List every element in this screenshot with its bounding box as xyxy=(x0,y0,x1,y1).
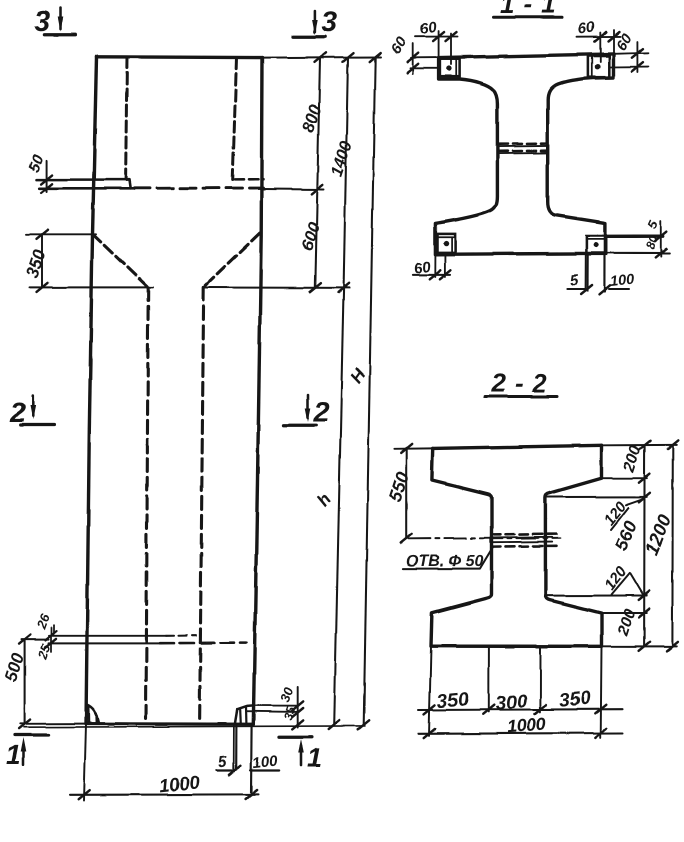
svg-text:1000: 1000 xyxy=(158,771,201,796)
svg-text:60: 60 xyxy=(413,258,433,277)
svg-text:350: 350 xyxy=(436,689,470,713)
svg-text:ОТВ. Ф 50: ОТВ. Ф 50 xyxy=(406,553,484,570)
svg-text:100: 100 xyxy=(252,753,279,773)
svg-text:3: 3 xyxy=(322,7,338,39)
svg-text:1000: 1000 xyxy=(506,713,547,736)
svg-text:300: 300 xyxy=(495,691,529,715)
svg-text:100: 100 xyxy=(609,272,635,290)
svg-text:1: 1 xyxy=(307,743,322,773)
svg-text:2-2: 2-2 xyxy=(490,368,556,398)
svg-text:2: 2 xyxy=(9,397,26,428)
svg-text:2: 2 xyxy=(313,397,330,428)
svg-text:60: 60 xyxy=(577,19,597,38)
svg-text:1: 1 xyxy=(6,740,21,770)
svg-text:60: 60 xyxy=(419,19,439,38)
svg-text:350: 350 xyxy=(558,688,592,712)
